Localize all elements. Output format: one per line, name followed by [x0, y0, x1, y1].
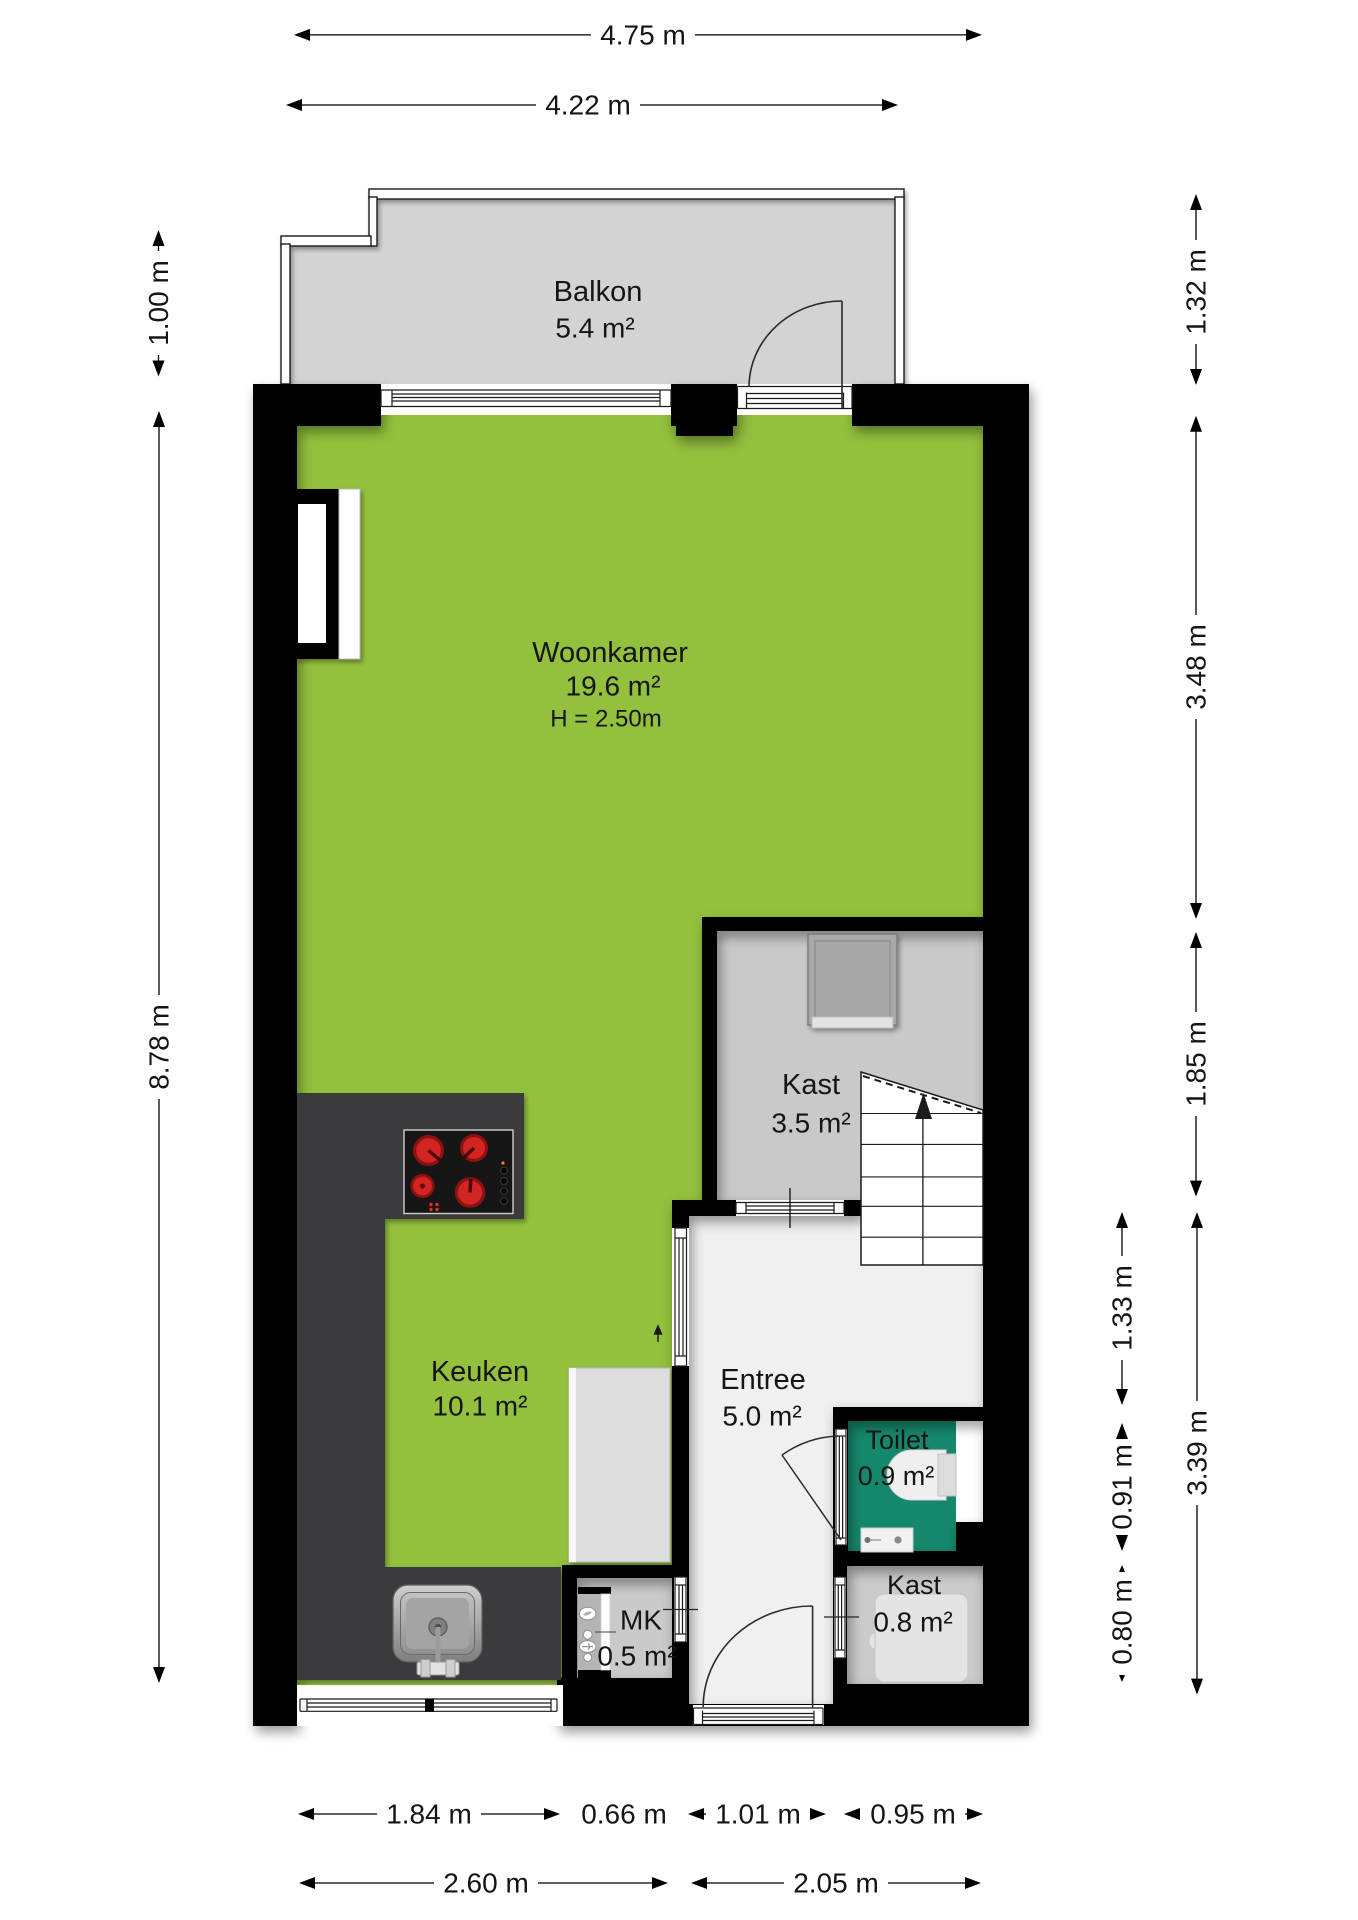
- svg-text:3.5 m²: 3.5 m²: [771, 1108, 850, 1139]
- svg-text:Kast: Kast: [782, 1069, 840, 1101]
- svg-text:10.1 m²: 10.1 m²: [433, 1391, 528, 1422]
- svg-text:1.01 m: 1.01 m: [715, 1799, 801, 1830]
- svg-text:0.66 m: 0.66 m: [581, 1799, 667, 1830]
- svg-text:19.6 m²: 19.6 m²: [566, 671, 661, 702]
- svg-text:1.32 m: 1.32 m: [1181, 249, 1212, 335]
- svg-text:Balkon: Balkon: [554, 276, 643, 308]
- svg-text:8.78 m: 8.78 m: [144, 1004, 175, 1090]
- svg-text:Toilet: Toilet: [865, 1425, 929, 1455]
- svg-text:Woonkamer: Woonkamer: [532, 637, 688, 669]
- svg-text:1.33 m: 1.33 m: [1107, 1265, 1138, 1351]
- svg-text:3.48 m: 3.48 m: [1181, 624, 1212, 710]
- svg-text:H = 2.50m: H = 2.50m: [550, 706, 661, 733]
- svg-text:0.80 m: 0.80 m: [1107, 1579, 1138, 1665]
- svg-text:4.75 m: 4.75 m: [600, 19, 686, 50]
- svg-text:0.9 m²: 0.9 m²: [858, 1461, 935, 1491]
- svg-text:5.0 m²: 5.0 m²: [722, 1401, 801, 1432]
- svg-text:2.60 m: 2.60 m: [443, 1868, 529, 1899]
- svg-text:MK: MK: [620, 1605, 662, 1636]
- svg-text:Entree: Entree: [720, 1364, 805, 1396]
- svg-text:0.8 m²: 0.8 m²: [873, 1607, 952, 1638]
- svg-text:3.39 m: 3.39 m: [1182, 1410, 1213, 1496]
- svg-text:Keuken: Keuken: [431, 1356, 529, 1388]
- svg-text:Kast: Kast: [887, 1570, 942, 1600]
- svg-text:1.84 m: 1.84 m: [386, 1799, 472, 1830]
- svg-text:1.00 m: 1.00 m: [143, 260, 174, 346]
- svg-text:1.85 m: 1.85 m: [1181, 1021, 1212, 1107]
- svg-text:0.95 m: 0.95 m: [870, 1799, 956, 1830]
- svg-text:4.22 m: 4.22 m: [545, 90, 631, 121]
- svg-text:0.91 m: 0.91 m: [1107, 1444, 1138, 1530]
- svg-text:0.5 m²: 0.5 m²: [597, 1641, 676, 1672]
- svg-text:5.4 m²: 5.4 m²: [555, 313, 634, 344]
- svg-text:2.05 m: 2.05 m: [793, 1868, 879, 1899]
